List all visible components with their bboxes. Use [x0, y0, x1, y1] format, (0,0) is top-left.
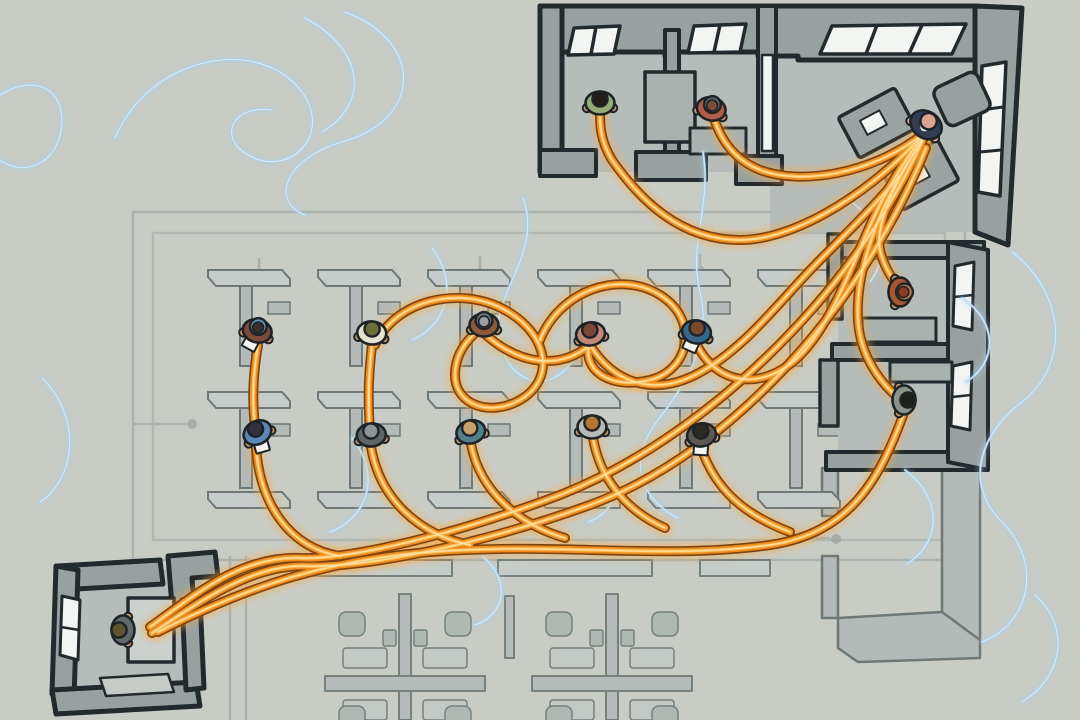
office-network-illustration: [0, 0, 1080, 720]
worker-sage-office: [893, 383, 916, 417]
worker-green-office: [583, 91, 617, 114]
illustration-stage: [0, 0, 1080, 720]
worker-lightgray: [575, 415, 609, 438]
worker-corner-office: [111, 613, 134, 647]
